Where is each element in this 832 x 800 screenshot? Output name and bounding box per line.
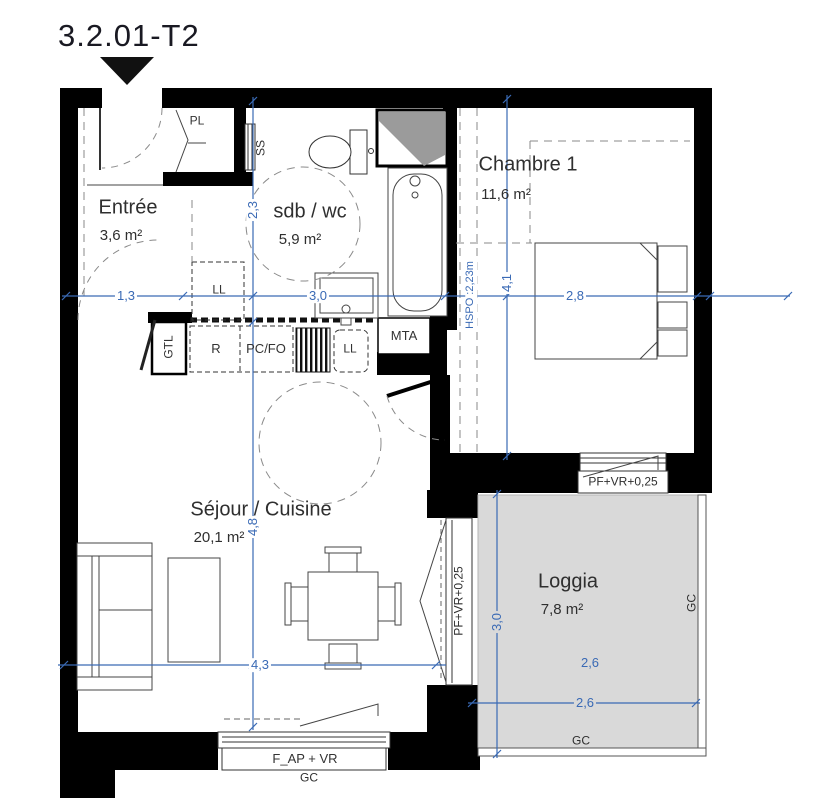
sofa	[77, 543, 152, 690]
room-sejour-name: Séjour / Cuisine	[190, 500, 331, 521]
closet-pl-label: PL	[190, 115, 205, 128]
room-entree-area: 3,6 m²	[100, 228, 143, 244]
dim-loggia-lower: 2,6	[574, 696, 596, 710]
towel-rail-label: SS	[255, 140, 268, 156]
washer-hall-label: LL	[212, 284, 225, 297]
room-entree-name: Entrée	[99, 198, 158, 219]
loggia-floor	[478, 495, 706, 756]
washer-label: LL	[343, 343, 356, 356]
bathtub	[388, 168, 447, 316]
dim-chambre-height: 4,1	[500, 272, 514, 294]
toilet	[309, 130, 374, 174]
room-sejour-area: 20,1 m²	[194, 530, 245, 546]
gc-bottom-label: GC	[300, 772, 318, 785]
cooktop-label: PC/FO	[246, 342, 286, 356]
mta-label: MTA	[391, 329, 417, 343]
dim-loggia-height: 3,0	[490, 611, 504, 633]
dim-sejour-width: 4,3	[249, 658, 271, 672]
bed	[535, 243, 687, 359]
room-chambre-area: 11,6 m²	[481, 187, 531, 203]
gc-right-label: GC	[686, 594, 699, 612]
section-marker-icon	[92, 55, 162, 95]
window-chambre-label: PF+VR+0,25	[588, 476, 657, 489]
dim-hspo: HSPO :2,23m	[465, 259, 477, 331]
window-bottom-label: F_AP + VR	[272, 752, 337, 766]
gc-loggia-label: GC	[572, 735, 590, 748]
room-loggia-area: 7,8 m²	[541, 602, 584, 618]
dim-chambre-width: 2,8	[564, 289, 586, 303]
gtl-label: GTL	[163, 335, 176, 358]
room-sdb-name: sdb / wc	[273, 202, 346, 223]
dim-sdb-height: 2,3	[246, 199, 260, 221]
room-chambre-name: Chambre 1	[479, 155, 578, 176]
floor-plan: 3.2.01-T2 Entrée 3,6 m² sdb / wc 5,9 m² …	[0, 0, 832, 800]
dim-loggia-upper: 2,6	[579, 656, 601, 670]
dim-entree-width: 1,3	[115, 289, 137, 303]
plan-title: 3.2.01-T2	[58, 18, 200, 54]
coffee-table	[168, 558, 220, 662]
window-sejour-label: PF+VR+0,25	[453, 566, 466, 635]
room-sdb-area: 5,9 m²	[279, 232, 322, 248]
dim-sdb-width: 3,0	[307, 289, 329, 303]
dim-sejour-height: 4,8	[246, 516, 260, 538]
fridge-label: R	[211, 342, 220, 356]
dining-set	[285, 547, 401, 669]
plan-linework	[0, 0, 832, 800]
duct-shaft	[377, 110, 447, 166]
room-loggia-name: Loggia	[538, 572, 598, 593]
